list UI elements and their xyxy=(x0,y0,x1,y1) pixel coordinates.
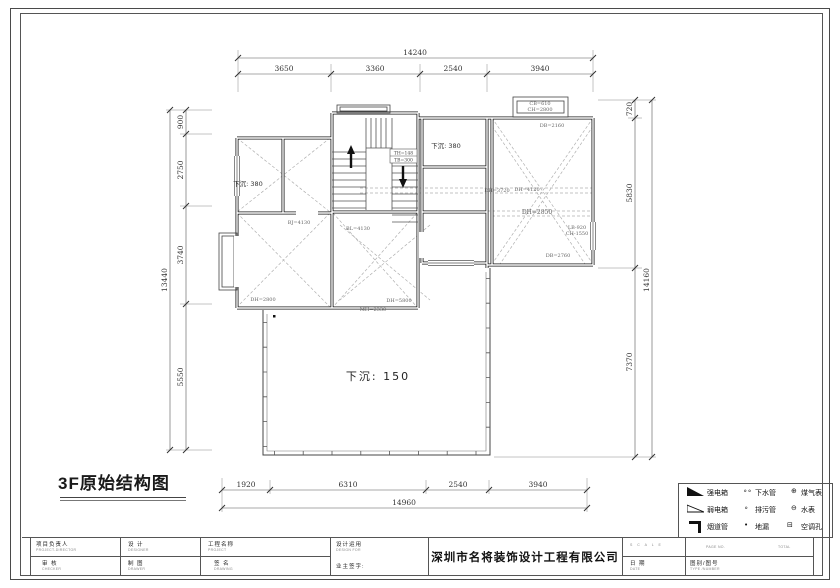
dim-top-seg: 3650 xyxy=(274,64,293,73)
tb-label-page-no: PAGE NO. xyxy=(706,545,725,549)
annotation: DH=4120 xyxy=(514,187,539,193)
tb-row-divider xyxy=(30,556,330,557)
legend-label: 煤气表 xyxy=(801,488,822,498)
dim-right-seg: 5830 xyxy=(625,183,634,202)
dim-left-seg: 5550 xyxy=(176,367,185,386)
annotation: DH=2800 xyxy=(250,297,275,303)
tb-label-en: TYPE /NUMBER xyxy=(690,567,720,571)
gas-meter-icon: ⊕ xyxy=(791,487,797,495)
legend-label: 弱电箱 xyxy=(707,505,728,515)
stair-tread-label: TB=300 xyxy=(394,158,413,164)
dim-top-seg: 3360 xyxy=(365,64,384,73)
legend-row: 强电箱 ∘∘ 下水管 ⊕ 煤气表 xyxy=(679,484,832,501)
annotation: MH=2330 xyxy=(360,307,386,313)
annotation: BJ=4130 xyxy=(288,220,311,226)
annotation: DH=3720 xyxy=(484,188,509,194)
tb-label-en: DRAWER xyxy=(128,567,145,571)
dim-top-seg: 2540 xyxy=(443,64,462,73)
legend-label: 空调孔 xyxy=(801,522,822,532)
tb-label-total: TOTAL xyxy=(778,545,790,549)
tb-label-scale: S C A L E xyxy=(630,543,663,547)
title-block: 项目负责人 PROJECT-DIRECTOR 审 核 CHECKER 设 计 D… xyxy=(22,537,821,575)
tb-label-project-director: 项目负责人 xyxy=(36,540,69,548)
floor-drain-icon: • xyxy=(744,521,748,529)
annotation: DH=5800 xyxy=(386,298,411,304)
dim-bottom-seg: 1920 xyxy=(236,480,255,489)
tb-label-designer: 设 计 xyxy=(128,540,144,548)
courtyard xyxy=(263,268,490,455)
title-underline xyxy=(60,497,186,498)
tb-label-date: 日 期 xyxy=(630,559,646,567)
dim-left-seg: 900 xyxy=(176,115,185,130)
dim-left-overall: 13440 xyxy=(160,268,169,292)
annotation: DB=2160 xyxy=(540,123,565,129)
room-label-left: 下沉: 380 xyxy=(233,180,263,188)
company-name: 深圳市名将装饰设计工程有限公司 xyxy=(428,538,622,575)
tb-label-drawer: 制 图 xyxy=(128,559,144,567)
water-meter-icon: ⊖ xyxy=(791,504,797,512)
tb-label-en: DRAWING xyxy=(214,567,233,571)
dim-bottom-seg: 3940 xyxy=(528,480,547,489)
legend-label: 水表 xyxy=(801,505,815,515)
stair-riser-label: TH=148 xyxy=(394,151,413,157)
legend-row: 弱电箱 ∘ 排污管 ⊖ 水表 xyxy=(679,501,832,518)
legend-label: 地漏 xyxy=(755,522,769,532)
room-label-courtyard: 下沉: 150 xyxy=(346,370,410,383)
tb-label-fig-number: 图别/图号 xyxy=(690,559,719,567)
tb-label-en: PROJECT-DIRECTOR xyxy=(36,548,76,552)
dim-top-overall: 14240 xyxy=(403,48,427,57)
bay-windows xyxy=(219,97,568,290)
tb-label-en: PROJECT xyxy=(208,548,226,552)
strong-power-box-icon xyxy=(687,487,704,496)
dim-left-seg: 2750 xyxy=(176,160,185,179)
tb-label-project-name: 工程名称 xyxy=(208,540,234,548)
dim-bottom-seg: 6310 xyxy=(338,480,357,489)
dim-right-seg: 7370 xyxy=(625,352,634,371)
dim-right-overall: 14160 xyxy=(642,268,651,292)
stair-label-box: TH=148 TB=300 xyxy=(390,149,417,164)
tb-label-en: DESIGNER xyxy=(128,548,149,552)
legend-label: 强电箱 xyxy=(707,488,728,498)
title-underline-2 xyxy=(60,500,186,501)
door-openings xyxy=(296,209,426,258)
annotation: CH-1550 xyxy=(566,231,589,237)
weak-power-box-icon xyxy=(687,504,704,513)
sewage-pipe-icon: ∘ xyxy=(744,504,748,512)
dim-left-seg: 3740 xyxy=(176,245,185,264)
legend-label: 烟道管 xyxy=(707,522,728,532)
annotation: BL=4130 xyxy=(346,226,370,232)
dim-bottom-overall: 14960 xyxy=(392,498,416,507)
tb-label-checker: 审 核 xyxy=(42,559,58,567)
annotation: DH=2850 xyxy=(522,209,553,216)
dim-bottom-seg: 2540 xyxy=(448,480,467,489)
tb-label-signature: 签 名 xyxy=(214,559,230,567)
drain-pipe-icon: ∘∘ xyxy=(743,487,752,495)
staircase xyxy=(332,118,418,222)
drawing-title: 3F原始结构图 xyxy=(58,469,170,494)
tb-label-en: DESIGN FOR xyxy=(336,548,361,552)
legend-label: 排污管 xyxy=(755,505,776,515)
dim-right-seg: 720 xyxy=(625,102,634,117)
tb-label-en: DATE xyxy=(630,567,640,571)
tb-divider xyxy=(813,538,814,575)
room-label-mid: 下沉: 380 xyxy=(431,142,461,150)
dimension-lines xyxy=(170,58,652,508)
ac-hole-icon: ⊟ xyxy=(787,521,793,529)
tb-label-design-for: 设计运用 xyxy=(336,540,362,548)
dimension-ticks xyxy=(167,55,655,511)
dim-top-seg: 3940 xyxy=(530,64,549,73)
legend-row: 烟道管 • 地漏 ⊟ 空调孔 xyxy=(679,518,832,535)
flue-pipe-icon xyxy=(689,521,701,533)
tb-label-owner-signature: 业主签字: xyxy=(336,562,365,570)
drawing-sheet: TH=148 TB=300 下沉: 380 下沉: 380 下沉: 150 BJ… xyxy=(0,0,840,588)
annotation: DB=2760 xyxy=(546,253,571,259)
bay-gap xyxy=(234,236,239,287)
annotation: CH=2800 xyxy=(527,107,552,113)
tb-label-en: CHECKER xyxy=(42,567,61,571)
tb-row-divider xyxy=(622,556,813,557)
legend-label: 下水管 xyxy=(755,488,776,498)
tb-divider xyxy=(330,538,331,575)
legend-box: 强电箱 ∘∘ 下水管 ⊕ 煤气表 弱电箱 ∘ 排污管 ⊖ 水表 烟道管 • 地漏… xyxy=(678,483,833,538)
